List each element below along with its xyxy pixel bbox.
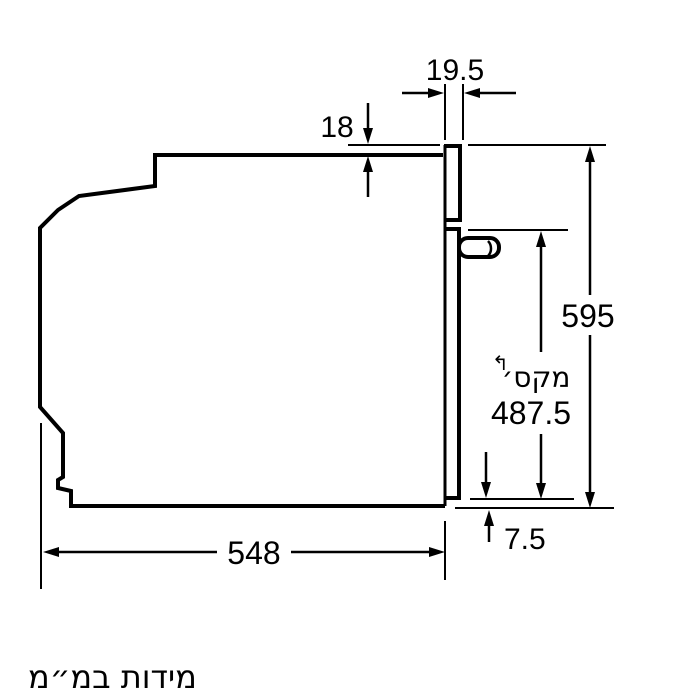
arrow-left-icon [43, 547, 59, 557]
dim-label-max: מקס׳ [502, 361, 571, 394]
arrow-up-icon [536, 231, 546, 247]
arrow-up-icon [363, 156, 373, 172]
oven-dimension-diagram: 19.5 18 595 ↰ [0, 0, 700, 700]
dim-label-595: 595 [561, 298, 614, 334]
technical-drawing-svg: 19.5 18 595 ↰ [0, 0, 700, 700]
dim-label-19-5: 19.5 [426, 54, 484, 87]
oven-profile [40, 145, 499, 506]
arrow-down-icon [536, 483, 546, 499]
arrow-down-icon [481, 482, 491, 498]
dim-label-548: 548 [227, 535, 280, 571]
door-handle [459, 238, 499, 257]
dimension-595: 595 [455, 145, 615, 508]
arrow-right-icon [429, 547, 445, 557]
arrow-down-icon [585, 492, 595, 508]
dim-label-487-5: 487.5 [491, 395, 571, 431]
dimension-7-5: 7.5 [481, 452, 546, 556]
units-caption: מידות במ״מ [28, 658, 197, 696]
dim-label-18: 18 [320, 111, 353, 144]
dim-label-7-5: 7.5 [504, 523, 546, 556]
arrow-up-icon [585, 146, 595, 162]
dimension-18: 18 [320, 103, 440, 197]
arrow-right-icon [428, 88, 444, 98]
oven-body-outline [40, 155, 445, 506]
arrow-left-icon [464, 88, 480, 98]
arrow-down-icon [363, 128, 373, 144]
arrow-up-icon [484, 510, 494, 526]
dimension-19-5: 19.5 [402, 54, 516, 140]
dimension-487-5: ↰ מקס׳ 487.5 [468, 230, 574, 499]
